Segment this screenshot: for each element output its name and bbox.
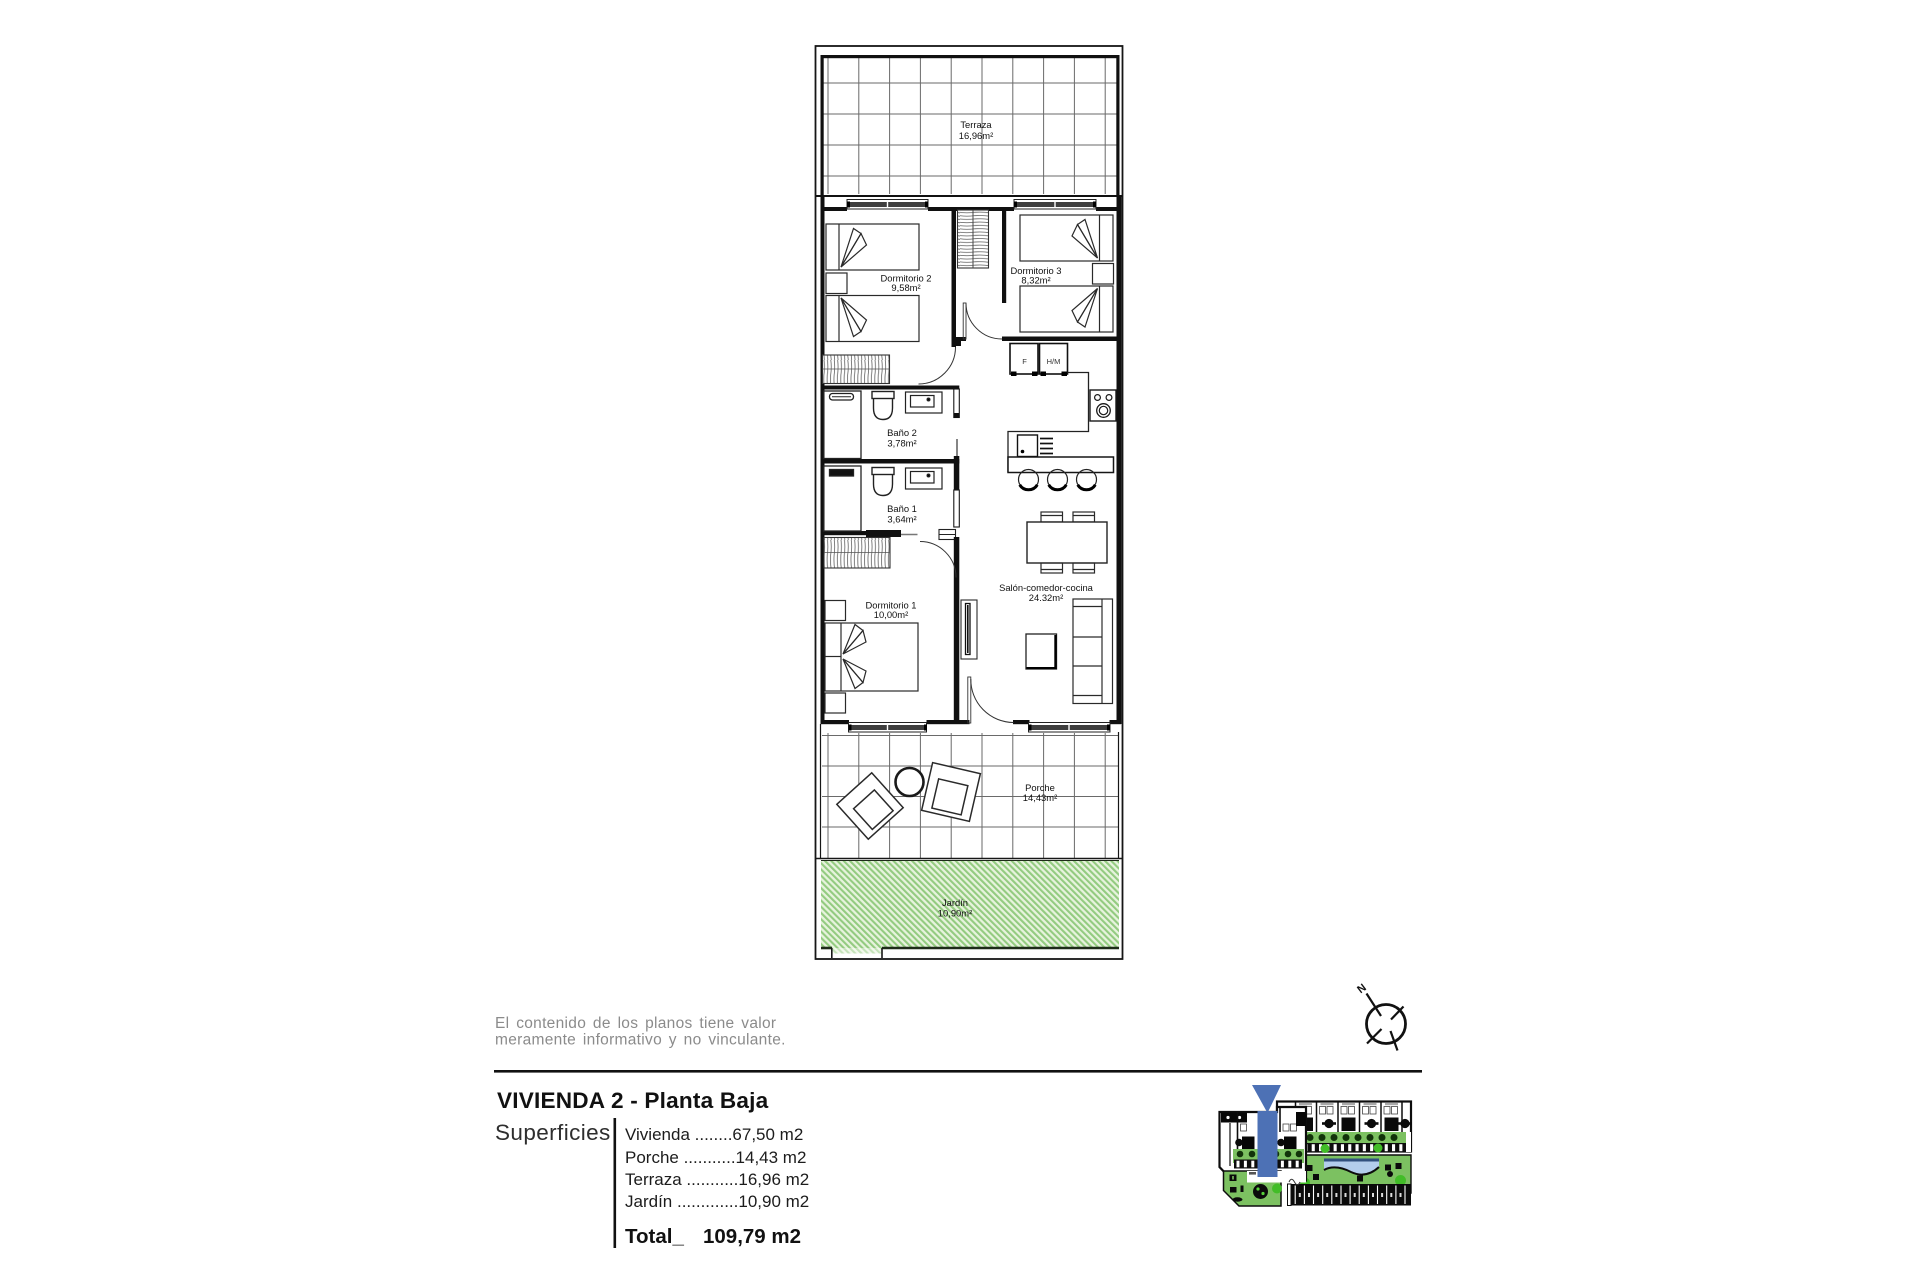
svg-text:El contenido de los planos tie: El contenido de los planos tiene valor — [495, 1015, 776, 1032]
svg-text:9,58m²: 9,58m² — [891, 282, 920, 293]
svg-text:meramente informativo y no vin: meramente informativo y no vinculante. — [495, 1032, 786, 1049]
svg-text:24.32m²: 24.32m² — [1029, 592, 1063, 603]
svg-text:Jardín .............10,90 m2: Jardín .............10,90 m2 — [625, 1192, 809, 1211]
svg-text:Superficies: Superficies — [495, 1120, 611, 1145]
svg-text:Baño 2: Baño 2 — [887, 427, 917, 438]
svg-text:8,32m²: 8,32m² — [1021, 275, 1050, 286]
svg-text:14,43m²: 14,43m² — [1023, 792, 1057, 803]
svg-text:3,64m²: 3,64m² — [887, 514, 916, 525]
svg-text:Total_: Total_ — [625, 1225, 684, 1248]
svg-text:VIVIENDA 2 - Planta Baja: VIVIENDA 2 - Planta Baja — [497, 1088, 769, 1113]
svg-text:16,96m²: 16,96m² — [959, 130, 993, 141]
svg-text:Terraza: Terraza — [960, 119, 992, 130]
svg-text:Porche ...........14,43 m2: Porche ...........14,43 m2 — [625, 1148, 806, 1167]
svg-text:10,00m²: 10,00m² — [874, 609, 908, 620]
svg-text:Terraza ...........16,96 m2: Terraza ...........16,96 m2 — [625, 1170, 809, 1189]
svg-text:F: F — [1022, 357, 1027, 366]
svg-text:3,78m²: 3,78m² — [887, 438, 916, 449]
svg-text:Jardín: Jardín — [942, 897, 968, 908]
svg-text:Vivienda ........67,50 m2: Vivienda ........67,50 m2 — [625, 1125, 803, 1144]
svg-text:H/M: H/M — [1047, 357, 1061, 366]
svg-text:10,90m²: 10,90m² — [938, 908, 972, 919]
svg-text:109,79 m2: 109,79 m2 — [703, 1225, 801, 1248]
svg-text:Baño 1: Baño 1 — [887, 503, 917, 514]
